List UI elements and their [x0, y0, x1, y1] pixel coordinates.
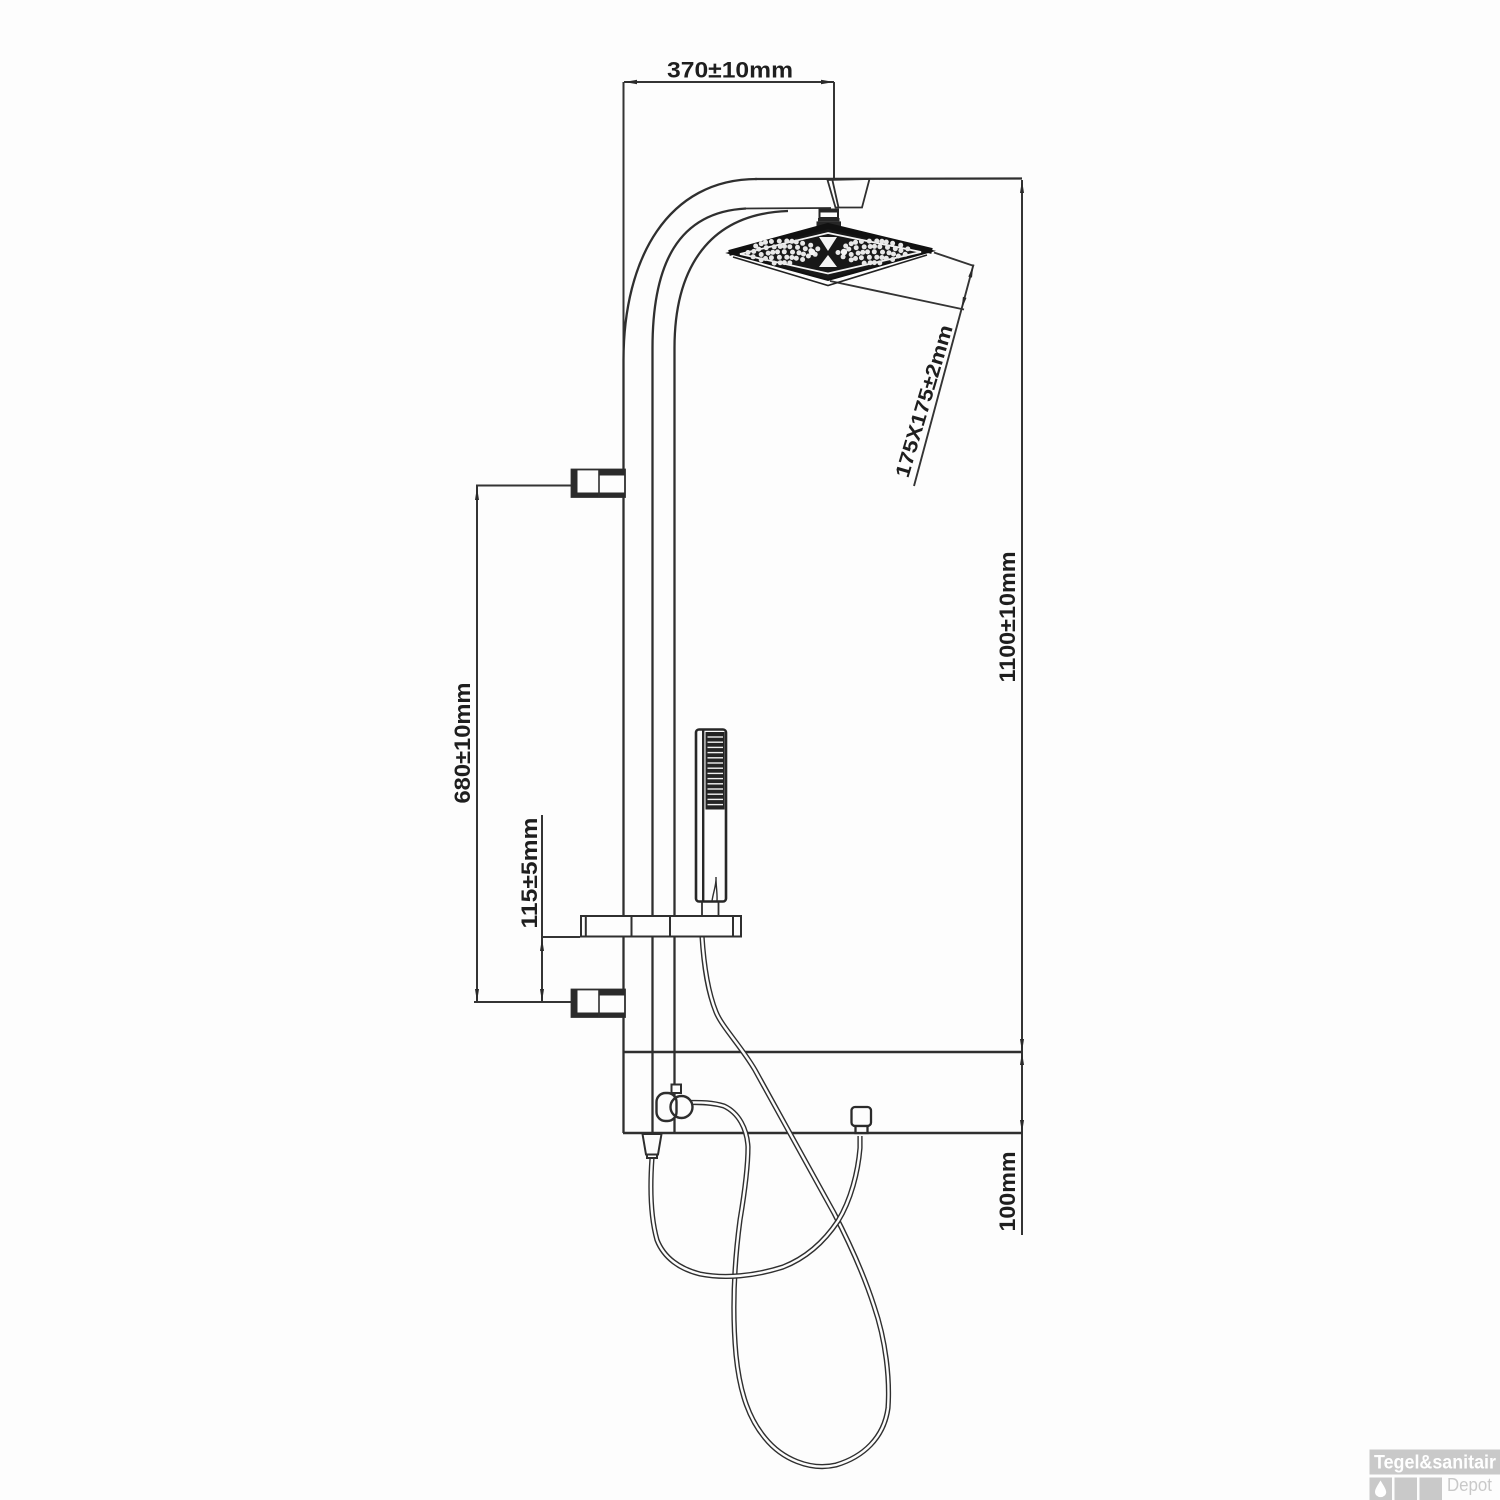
svg-text:100mm: 100mm — [995, 1152, 1020, 1232]
svg-text:680±10mm: 680±10mm — [450, 683, 475, 804]
svg-text:Depot: Depot — [1447, 1474, 1492, 1495]
svg-text:Tegel&sanitair: Tegel&sanitair — [1374, 1453, 1497, 1474]
svg-text:175X175±2mm: 175X175±2mm — [892, 322, 958, 480]
svg-text:370±10mm: 370±10mm — [667, 58, 793, 83]
svg-text:1100±10mm: 1100±10mm — [995, 552, 1020, 683]
svg-text:115±5mm: 115±5mm — [517, 818, 542, 929]
